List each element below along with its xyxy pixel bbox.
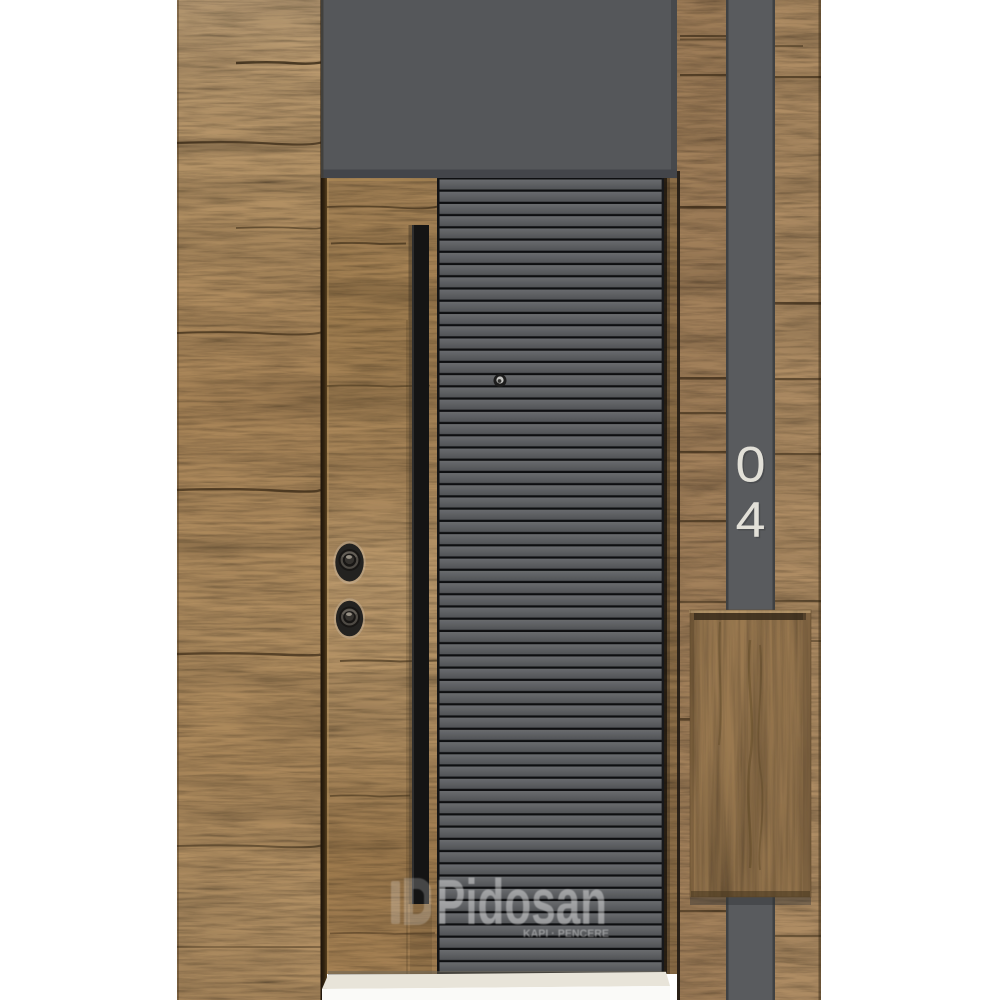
svg-text:4: 4: [735, 493, 765, 549]
svg-text:KAPI · PENCERE: KAPI · PENCERE: [523, 928, 609, 940]
svg-text:0: 0: [735, 437, 765, 493]
